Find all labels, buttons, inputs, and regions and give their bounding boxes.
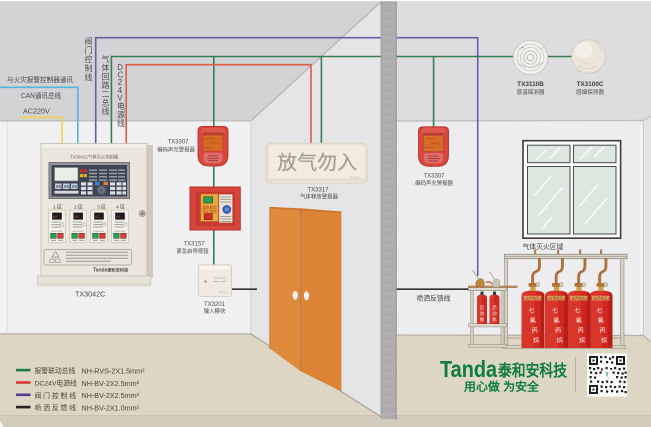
svg-text:感烟探测器: 感烟探测器 [576, 88, 604, 96]
svg-text:与火灾报警控制器通讯: 与火灾报警控制器通讯 [7, 75, 73, 84]
svg-text:88: 88 [53, 214, 58, 219]
svg-text:Tanda: Tanda [218, 291, 228, 295]
svg-text:启动瓶: 启动瓶 [480, 304, 485, 323]
svg-text:编码声光警报器: 编码声光警报器 [157, 146, 195, 154]
svg-text:TX3157: TX3157 [183, 242, 205, 248]
svg-text:用心做 为安全: 用心做 为安全 [463, 380, 540, 394]
svg-text:TX3307: TX3307 [423, 174, 445, 180]
svg-text:DC24V电源线: DC24V电源线 [35, 379, 78, 388]
svg-text:阀门控制线: 阀门控制线 [85, 37, 93, 82]
svg-text:放气勿入: 放气勿入 [277, 152, 357, 174]
svg-text:TX3307: TX3307 [167, 140, 189, 146]
svg-text:TX3317: TX3317 [307, 188, 329, 194]
svg-text:4 区: 4 区 [116, 204, 125, 210]
svg-text:感温探测器: 感温探测器 [517, 88, 545, 96]
svg-text:88: 88 [64, 184, 70, 189]
svg-text:CAN通讯总线: CAN通讯总线 [21, 91, 61, 100]
svg-text:七氟丙烷灭火: 七氟丙烷灭火 [590, 296, 611, 301]
svg-text:启动瓶: 启动瓶 [492, 304, 497, 323]
svg-text:编码声光警报器: 编码声光警报器 [415, 179, 453, 187]
svg-text:气体释放警报器: 气体释放警报器 [300, 193, 338, 201]
svg-text:紧急启停按钮: 紧急启停按钮 [176, 247, 209, 255]
svg-text:NH-BV-2X2.5mm²: NH-BV-2X2.5mm² [82, 379, 140, 388]
svg-text:Tanda: Tanda [440, 356, 497, 382]
svg-text:NH-RVS-2X1.5mm²: NH-RVS-2X1.5mm² [82, 366, 146, 375]
svg-text:泰和安科技: 泰和安科技 [497, 361, 568, 380]
svg-text:NH-BV-2X1.0mm²: NH-BV-2X1.0mm² [82, 403, 140, 412]
svg-text:NH-BV-2X2.5mm²: NH-BV-2X2.5mm² [82, 391, 140, 400]
svg-text:2 区: 2 区 [74, 204, 83, 210]
svg-text:TX3110B: TX3110B [517, 81, 544, 88]
svg-text:Tanda: Tanda [349, 176, 359, 180]
svg-text:喷 洒 反 馈 线: 喷 洒 反 馈 线 [35, 403, 77, 412]
svg-text:TX3042C: TX3042C [75, 290, 105, 299]
svg-text:阀 门 控 制 线: 阀 门 控 制 线 [35, 391, 77, 400]
svg-text:输入模块: 输入模块 [204, 307, 226, 315]
svg-text:TX3100C: TX3100C [577, 81, 604, 88]
svg-text:3 区: 3 区 [97, 204, 106, 210]
svg-text:1 区: 1 区 [53, 204, 62, 210]
svg-text:TX3201: TX3201 [204, 302, 226, 308]
svg-text:AC220V: AC220V [23, 107, 50, 116]
svg-text:88: 88 [72, 184, 78, 189]
svg-text:TX3042C气体灭火控制器: TX3042C气体灭火控制器 [70, 154, 119, 161]
svg-text:88: 88 [56, 184, 62, 189]
svg-text:Tanda泰和安科技: Tanda泰和安科技 [93, 267, 129, 274]
svg-text:气体回路二总线: 气体回路二总线 [102, 54, 110, 116]
svg-text:停止喷洒: 停止喷洒 [202, 208, 217, 213]
svg-text:报警联动总线: 报警联动总线 [35, 366, 76, 375]
svg-text:喷洒反馈线: 喷洒反馈线 [417, 294, 451, 303]
